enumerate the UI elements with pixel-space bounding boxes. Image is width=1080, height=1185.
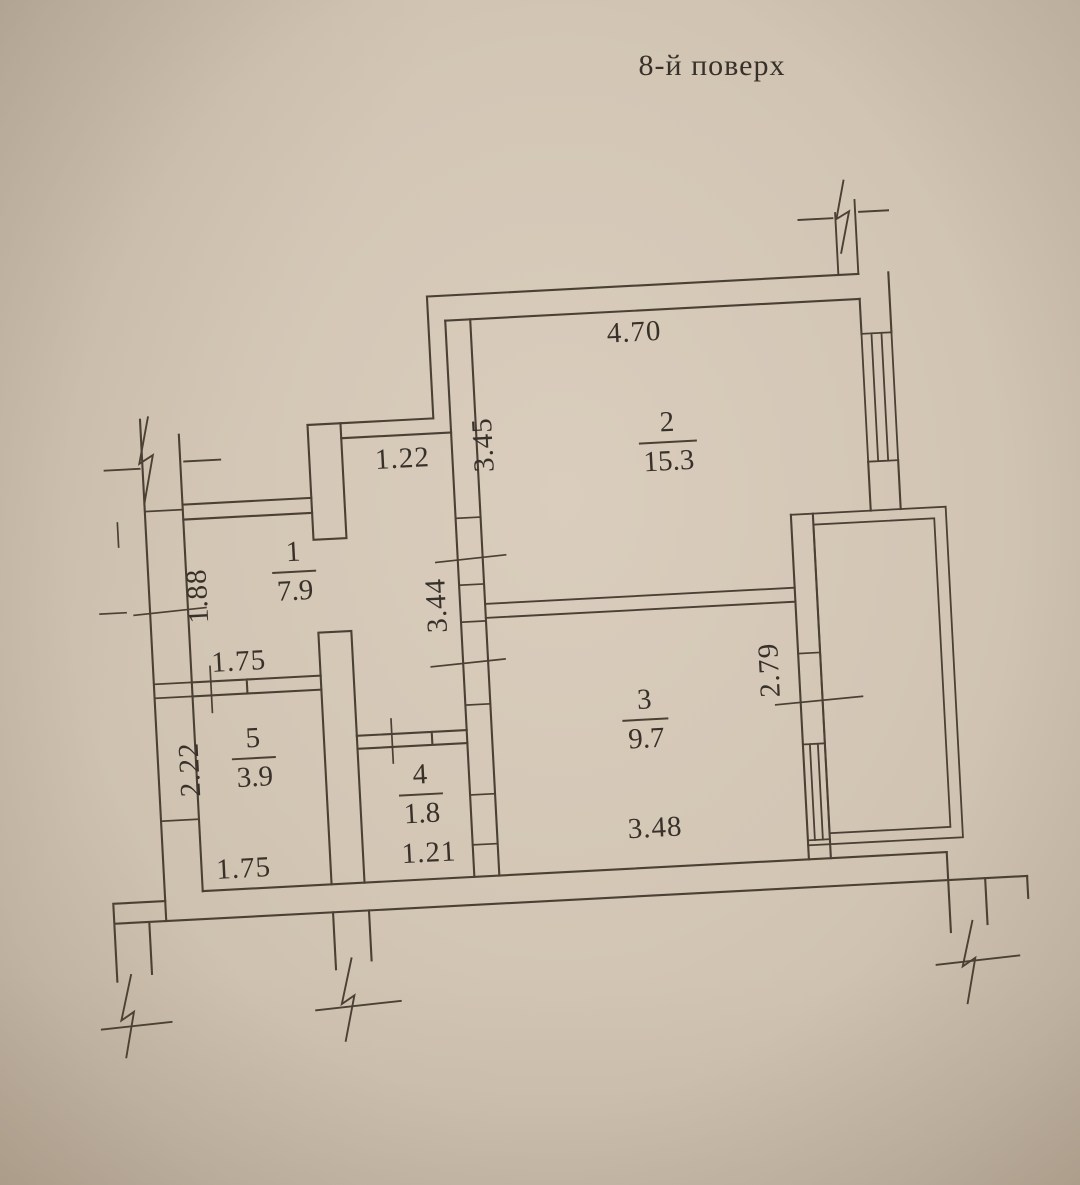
dim-hall-opening: 1.22 bbox=[374, 441, 430, 477]
left-wall bbox=[140, 418, 204, 921]
room-area: 9.7 bbox=[623, 723, 670, 755]
dim-hall-left: 1.88 bbox=[180, 568, 216, 624]
dim-room3-width: 3.48 bbox=[627, 810, 683, 846]
room-label-1: 1 7.9 bbox=[270, 537, 318, 607]
wall-break-symbol-bottom-left bbox=[99, 973, 173, 1059]
fraction-line bbox=[272, 569, 316, 573]
room-label-3: 3 9.7 bbox=[621, 684, 671, 754]
hall-top-wall bbox=[182, 498, 312, 520]
room-number: 2 bbox=[637, 407, 696, 440]
wall-break-symbol-top-left bbox=[102, 414, 222, 506]
dim-room5-width: 1.75 bbox=[215, 851, 271, 887]
room-number: 5 bbox=[230, 723, 275, 755]
dim-room2-height: 3.45 bbox=[466, 417, 502, 473]
dim-room2-width: 4.70 bbox=[606, 315, 662, 351]
room-area: 7.9 bbox=[272, 575, 317, 607]
floor-plan: 1 7.9 2 15.3 3 9.7 4 1.8 5 3.9 4.70 3.45… bbox=[0, 0, 1080, 1185]
dim-balcony-length: 2.79 bbox=[752, 642, 788, 698]
room5-room4-wall bbox=[318, 631, 364, 884]
wall-break-symbol-top-right bbox=[797, 178, 892, 277]
balcony bbox=[791, 507, 963, 846]
wall-break-symbol-bottom-center bbox=[314, 956, 403, 1042]
fraction-line bbox=[399, 792, 443, 796]
dim-room5-height: 2.22 bbox=[172, 741, 208, 797]
room-label-2: 2 15.3 bbox=[637, 407, 698, 478]
room4-top-wall bbox=[356, 715, 468, 765]
floor-plan-drawing bbox=[0, 0, 1080, 1185]
dim-room5-door: 1.75 bbox=[211, 644, 267, 680]
room-area: 15.3 bbox=[639, 445, 698, 478]
wall-break-symbol-bottom-right bbox=[934, 919, 1021, 1005]
room-label-5: 5 3.9 bbox=[230, 723, 278, 793]
dimension-tick-balcony-door bbox=[776, 696, 863, 705]
room-label-4: 4 1.8 bbox=[397, 759, 445, 829]
scanned-floor-plan-page: 8-й поверх bbox=[0, 0, 1080, 1185]
central-wall bbox=[445, 319, 499, 877]
hall-pillar-top bbox=[307, 423, 346, 540]
dim-room4-width: 1.21 bbox=[401, 835, 457, 871]
room-number: 3 bbox=[621, 684, 668, 716]
window-symbol-room2 bbox=[861, 332, 898, 461]
room-number: 1 bbox=[270, 537, 315, 569]
room-area: 1.8 bbox=[399, 798, 444, 830]
fraction-line bbox=[232, 756, 276, 760]
room-area: 3.9 bbox=[232, 762, 277, 794]
room3-right-wall bbox=[791, 514, 831, 860]
dim-hall-wall: 3.44 bbox=[419, 577, 455, 633]
room2-top-wall bbox=[301, 274, 865, 440]
room-number: 4 bbox=[397, 759, 442, 791]
room2-room3-divider-wall bbox=[485, 588, 795, 618]
